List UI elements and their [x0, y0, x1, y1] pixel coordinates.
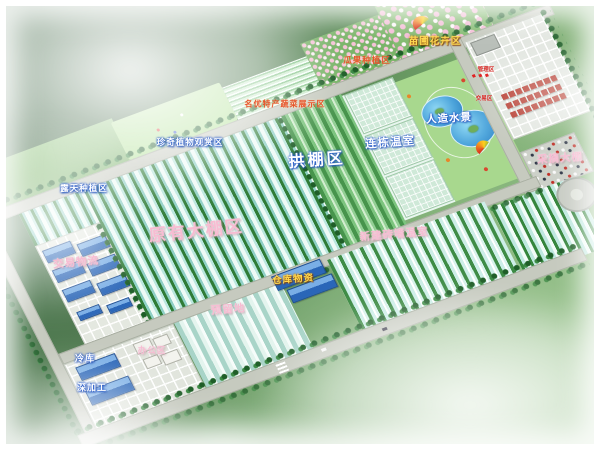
- label-office-area: 办公区: [138, 344, 167, 356]
- warehouse-roof: [62, 280, 96, 303]
- label-nursery-flower: 苗圃花卉区: [409, 33, 462, 47]
- label-management-area: 管理区: [478, 65, 495, 73]
- flag: [472, 74, 475, 77]
- label-deep-processing: 深加工: [77, 381, 107, 394]
- masterplan-rendering: 露天种植区 珍奇植物观赏区 名优特产蔬菜展示区 瓜果种植区 苗圃花卉区 拱棚区 …: [0, 0, 600, 450]
- label-open-air-planting: 露天种植区: [60, 182, 108, 194]
- flag: [485, 74, 488, 77]
- flower-tree: [461, 78, 467, 83]
- label-reserved-land: 预留地: [210, 300, 245, 317]
- label-picking-greenhouse: 采摘大棚: [537, 149, 584, 167]
- plaza-center: [568, 187, 585, 202]
- label-rare-plants-viewing: 珍奇植物观赏区: [157, 136, 224, 148]
- label-warehouse-materials: 仓库物资: [272, 270, 315, 287]
- warehouse-roof: [106, 297, 133, 314]
- visitor-figure: [180, 113, 184, 117]
- office-building: [142, 354, 162, 369]
- rainbow-flowerbed: [409, 12, 429, 30]
- flower-tree: [406, 94, 412, 99]
- label-cold-storage: 冷库: [75, 352, 95, 365]
- label-vegetable-display: 名优特产蔬菜展示区: [245, 99, 326, 110]
- flower-tree: [483, 167, 489, 172]
- label-arch-shed-area: 拱棚区: [288, 144, 347, 172]
- visitor-figure: [156, 128, 160, 132]
- label-artificial-water: 人造水景: [426, 109, 473, 126]
- warehouse-roof: [76, 304, 103, 321]
- office-building: [470, 34, 501, 56]
- flower-tree: [445, 158, 451, 163]
- flag: [478, 74, 481, 77]
- label-trading-area: 交易区: [476, 94, 493, 102]
- label-melon-fruit-planting: 瓜果种植区: [343, 54, 391, 66]
